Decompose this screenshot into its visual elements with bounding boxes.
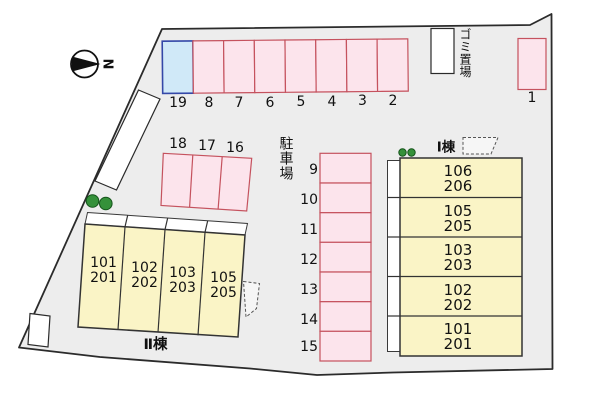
- structure-southwest: [28, 314, 50, 348]
- parking-column-9-15: [320, 153, 371, 361]
- parking-space-12: [320, 242, 371, 272]
- unit-number-upper: 101: [90, 256, 117, 271]
- building-2-unit-101-201: 101 201: [90, 256, 117, 286]
- unit-number-lower: 203: [169, 281, 196, 296]
- parking-space-number-8: 8: [205, 96, 214, 110]
- building-2-unit-102-202: 102 202: [131, 261, 158, 291]
- parking-space-7: [224, 40, 255, 93]
- parking-space-number-3: 3: [358, 94, 367, 108]
- parking-space-14: [320, 302, 371, 332]
- building-1-unit-103-203: 103 203: [444, 243, 473, 273]
- parking-space-number-14: 14: [294, 312, 318, 328]
- parking-space-number-16: 16: [226, 141, 244, 155]
- parking-space-1: [518, 39, 546, 90]
- parking-space-number-11: 11: [294, 222, 318, 238]
- parking-space-number-5: 5: [297, 95, 306, 109]
- parking-space-number-17: 17: [198, 139, 216, 153]
- parking-space-6: [254, 40, 285, 93]
- parking-space-number-1: 1: [528, 91, 537, 105]
- parking-space-number-18: 18: [169, 137, 187, 151]
- building-1-unit-106-206: 106 206: [444, 164, 473, 194]
- parking-space-number-4: 4: [328, 95, 337, 109]
- garbage-area-label: ゴミ置場: [459, 28, 471, 78]
- parking-space-number-10: 10: [294, 192, 318, 208]
- north-label: N: [101, 58, 114, 69]
- parking-block-16-18: [161, 153, 252, 211]
- tree-icon: [100, 197, 113, 210]
- parking-block-16-18-outline: [161, 153, 252, 211]
- building-1-unit-101-201: 101 201: [444, 322, 473, 352]
- parking-lot-label: 駐車場: [279, 136, 293, 181]
- parking-space-11: [320, 213, 371, 243]
- building-1-label: Ⅰ棟: [437, 141, 456, 155]
- unit-number-upper: 105: [210, 271, 237, 286]
- building-1-unit-105-205: 105 205: [444, 204, 473, 234]
- unit-number-lower: 205: [210, 286, 237, 301]
- tree-icon: [86, 195, 99, 208]
- parking-space-3: [346, 39, 377, 92]
- parking-space-5: [285, 40, 316, 93]
- tree-icon: [408, 149, 415, 156]
- unit-number-lower: 201: [444, 337, 473, 352]
- unit-number-lower: 202: [444, 298, 473, 313]
- unit-number-lower: 205: [444, 219, 473, 234]
- building-2-unit-103-203: 103 203: [169, 266, 196, 296]
- unit-number-lower: 206: [444, 179, 473, 194]
- parking-space-13: [320, 272, 371, 302]
- building-1-unit-102-202: 102 202: [444, 283, 473, 313]
- site-plan: N 19 8 7 6 5 4 3 2 1 18 17 16 9 10 11 12…: [0, 0, 600, 400]
- building-1-balcony: [388, 161, 401, 352]
- parking-space-4: [316, 39, 347, 92]
- parking-space-2: [377, 39, 408, 92]
- parking-space-number-19: 19: [169, 96, 187, 110]
- unit-number-upper: 102: [131, 261, 158, 276]
- parking-space-number-13: 13: [294, 282, 318, 298]
- unit-number-lower: 201: [90, 271, 117, 286]
- parking-space-10: [320, 183, 371, 213]
- parking-space-number-2: 2: [389, 94, 398, 108]
- parking-space-number-9: 9: [294, 162, 318, 178]
- unit-number-upper: 103: [169, 266, 196, 281]
- building-2-label: Ⅱ棟: [143, 337, 167, 352]
- parking-space-number-6: 6: [266, 96, 275, 110]
- parking-space-15: [320, 331, 371, 361]
- tree-icon: [399, 149, 406, 156]
- building-2-unit-105-205: 105 205: [210, 271, 237, 301]
- parking-space-9: [320, 153, 371, 183]
- north-arrow: [71, 51, 101, 78]
- unit-number-lower: 202: [131, 276, 158, 291]
- parking-space-19: [162, 41, 193, 94]
- garbage-station-box: [431, 29, 454, 74]
- parking-row-top: [162, 39, 408, 94]
- unit-number-lower: 203: [444, 258, 473, 273]
- parking-space-number-7: 7: [235, 96, 244, 110]
- parking-space-number-15: 15: [294, 339, 318, 355]
- parking-space-8: [193, 41, 224, 94]
- parking-space-number-12: 12: [294, 252, 318, 268]
